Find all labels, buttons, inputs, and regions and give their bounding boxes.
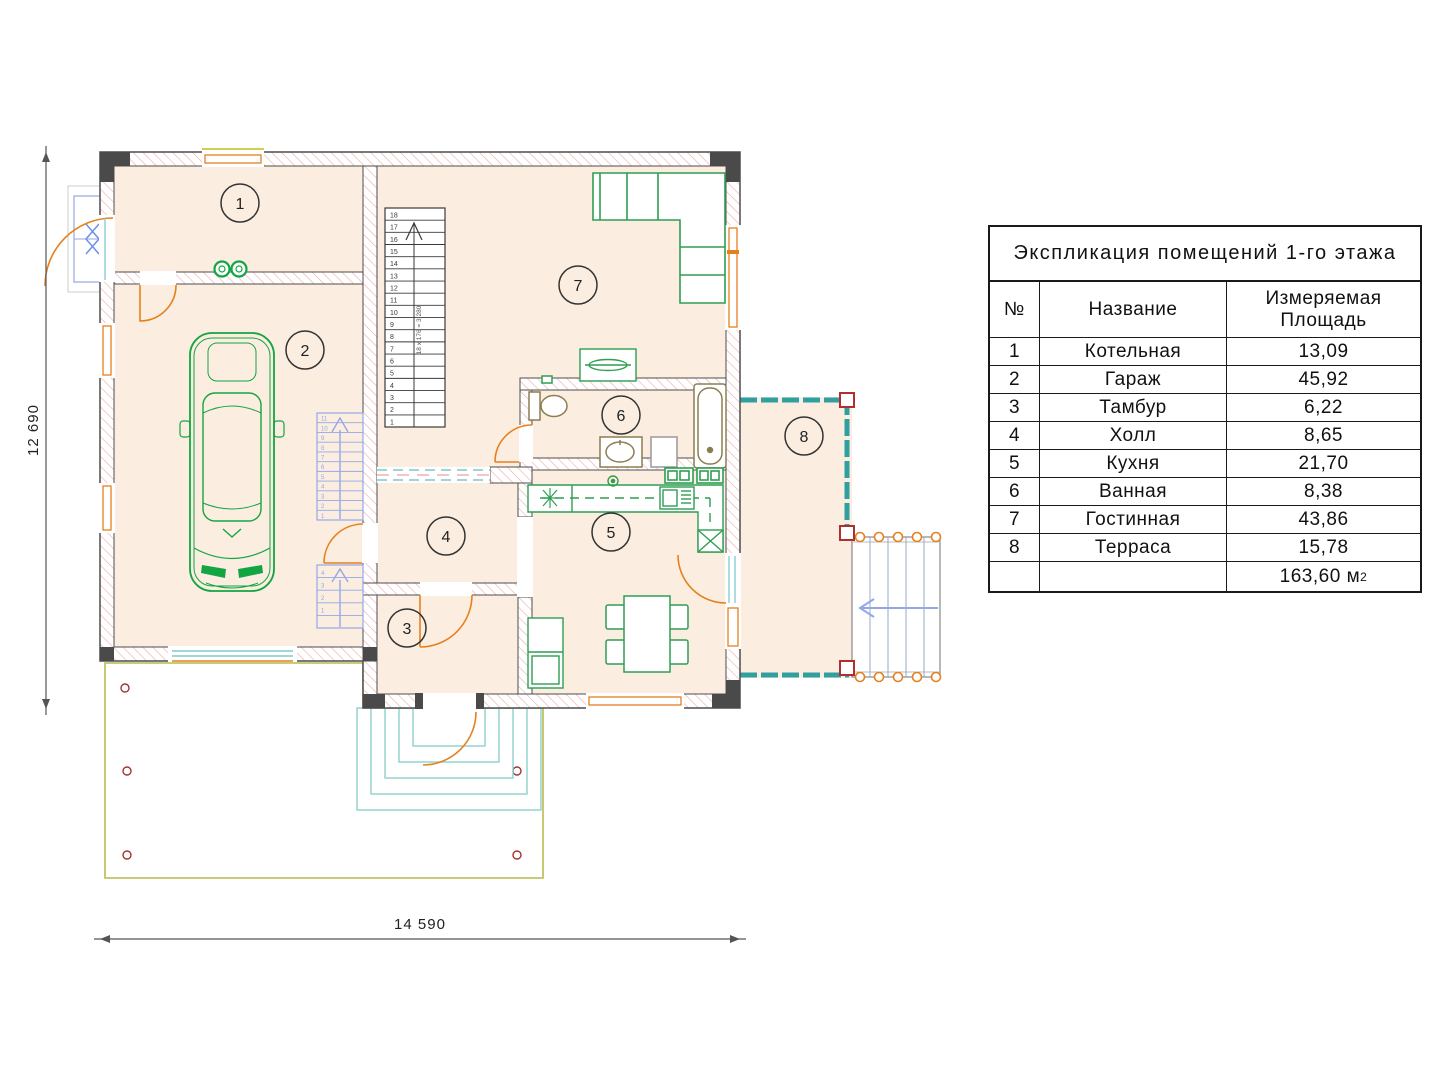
row-name: Котельная [1040,338,1227,366]
row-area: 43,86 [1227,506,1420,534]
row-area: 21,70 [1227,450,1420,478]
svg-text:16: 16 [390,237,398,244]
table-title: Экспликация помещений 1-го этажа [990,227,1420,282]
row-num: 4 [990,422,1040,450]
row-name: Гараж [1040,366,1227,394]
window-kitchen-bottom [586,693,684,709]
row-name: Тамбур [1040,394,1227,422]
tv-stand [580,349,636,381]
window-garage-left-2 [99,483,115,533]
toilet-tank [529,392,540,420]
window-garage-bottom [168,646,297,662]
col-header-area-line1: Измеряемая [1265,288,1381,310]
svg-text:6: 6 [390,359,394,366]
svg-text:6: 6 [617,408,626,425]
room-schedule-table: Экспликация помещений 1-го этажа № Назва… [988,225,1422,593]
total-empty-name [1040,562,1227,591]
dining-table [624,596,670,672]
toilet-bowl [541,396,567,417]
svg-text:2: 2 [390,407,394,414]
row-num: 5 [990,450,1040,478]
fridge [698,530,723,552]
svg-text:4: 4 [442,529,451,546]
col-header-area: Измеряемая Площадь [1227,282,1420,338]
svg-text:10: 10 [390,310,398,317]
svg-text:13: 13 [390,273,398,280]
row-name: Терраса [1040,534,1227,562]
row-area: 13,09 [1227,338,1420,366]
svg-text:7: 7 [574,278,583,295]
row-num: 3 [990,394,1040,422]
table-grid: № Название Измеряемая Площадь 1 Котельна… [990,282,1420,591]
svg-text:8: 8 [390,334,394,341]
svg-text:3: 3 [390,395,394,402]
svg-text:10: 10 [321,426,328,432]
main-staircase: 181716151413121110987654321 18 x 176 = 3… [385,208,445,427]
dimension-width: 14 590 [94,916,746,943]
bathtub-drain [708,448,713,453]
svg-text:9: 9 [390,322,394,329]
window-living-right [725,225,741,330]
svg-text:4: 4 [390,383,394,390]
window-garage-left-1 [99,323,115,378]
svg-text:12: 12 [390,286,398,293]
kitchen-cabinet [528,618,563,688]
svg-text:5: 5 [390,371,394,378]
total-area-value: 163,60 м [1280,566,1360,588]
svg-text:18: 18 [390,212,398,219]
row-area: 8,65 [1227,422,1420,450]
svg-text:3: 3 [403,621,412,638]
svg-text:15: 15 [390,249,398,256]
svg-text:17: 17 [390,225,398,232]
svg-text:1: 1 [390,419,394,426]
row-num: 6 [990,478,1040,506]
dim-width-label: 14 590 [394,916,446,933]
cooktop-star [542,488,558,508]
window-boiler-top [202,149,264,167]
total-empty-num [990,562,1040,591]
row-num: 7 [990,506,1040,534]
terrace [740,397,852,678]
svg-text:11: 11 [390,298,397,305]
row-area: 8,38 [1227,478,1420,506]
row-area: 45,92 [1227,366,1420,394]
window-kitchen-right [725,605,741,649]
svg-text:1: 1 [236,196,245,213]
svg-text:7: 7 [390,346,394,353]
row-name: Холл [1040,422,1227,450]
svg-text:5: 5 [607,525,616,542]
col-header-number: № [990,282,1040,338]
terrace-exterior-stair [852,533,941,682]
door-entrance [423,712,476,765]
row-area: 15,78 [1227,534,1420,562]
row-num: 8 [990,534,1040,562]
dimension-height: 12 690 [25,146,50,715]
driveway-markers [121,684,521,859]
floor-plan-drawing: 181716151413121110987654321 18 x 176 = 3… [0,0,960,1000]
stair-formula-label: 18 x 176 = 3,280 [416,305,423,354]
washer [651,437,677,467]
row-name: Ванная [1040,478,1227,506]
row-num: 2 [990,366,1040,394]
stove-unit [660,487,694,509]
total-area: 163,60 м2 [1227,562,1420,591]
wall-item [542,376,552,383]
svg-text:2: 2 [301,343,310,360]
dim-height-label: 12 690 [25,404,42,456]
svg-text:14: 14 [390,261,398,268]
row-name: Кухня [1040,450,1227,478]
svg-text:11: 11 [321,417,328,423]
row-name: Гостинная [1040,506,1227,534]
row-num: 1 [990,338,1040,366]
col-header-area-line2: Площадь [1280,310,1366,332]
floor-plan-page: 181716151413121110987654321 18 x 176 = 3… [0,0,1440,1080]
svg-text:8: 8 [800,429,809,446]
wide-opening [377,467,490,483]
col-header-name: Название [1040,282,1227,338]
row-area: 6,22 [1227,394,1420,422]
